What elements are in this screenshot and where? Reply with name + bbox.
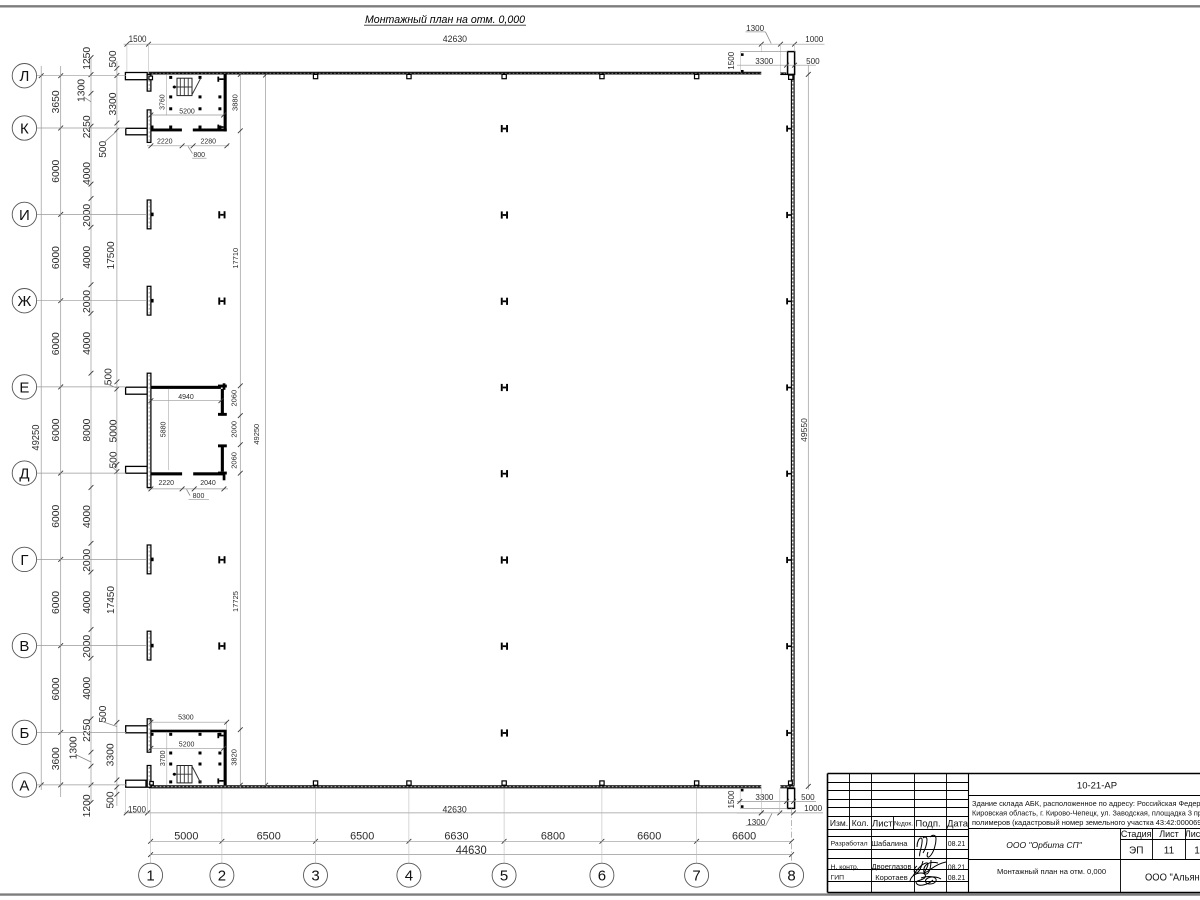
svg-text:Кол.: Кол.	[852, 818, 869, 828]
svg-text:4000: 4000	[81, 677, 93, 700]
svg-text:08.21: 08.21	[948, 865, 966, 872]
svg-text:Двоеглазов: Двоеглазов	[872, 862, 912, 871]
svg-text:2000: 2000	[81, 290, 93, 313]
svg-text:1500: 1500	[726, 51, 736, 69]
svg-text:6000: 6000	[50, 677, 62, 700]
svg-text:11: 11	[1164, 846, 1175, 857]
svg-text:Лист: Лист	[1159, 829, 1179, 839]
svg-text:ООО "Орбита СП": ООО "Орбита СП"	[1006, 840, 1082, 850]
svg-text:Листов: Листов	[1185, 829, 1200, 839]
svg-text:08.21: 08.21	[948, 841, 966, 848]
svg-text:А: А	[19, 777, 29, 794]
svg-text:4940: 4940	[178, 394, 194, 401]
svg-text:42630: 42630	[442, 805, 466, 815]
svg-text:1000: 1000	[804, 803, 822, 813]
svg-text:6500: 6500	[350, 831, 374, 843]
svg-text:500: 500	[103, 368, 115, 385]
svg-text:5200: 5200	[179, 741, 195, 748]
svg-text:1: 1	[1194, 846, 1200, 857]
svg-text:5: 5	[500, 868, 508, 885]
svg-text:6: 6	[598, 868, 606, 885]
svg-text:Монтажный план на отм. 0,000: Монтажный план на отм. 0,000	[365, 14, 526, 26]
svg-text:3300: 3300	[755, 792, 773, 802]
svg-text:2060: 2060	[229, 452, 238, 469]
svg-text:Л: Л	[19, 68, 29, 85]
svg-text:3600: 3600	[50, 747, 62, 770]
svg-text:3300: 3300	[755, 56, 773, 66]
svg-text:5200: 5200	[179, 108, 195, 115]
svg-text:ЭП: ЭП	[1129, 846, 1143, 857]
svg-text:Подп.: Подп.	[915, 818, 940, 829]
svg-text:6600: 6600	[637, 831, 661, 843]
svg-text:полимеров (кадастровый номер з: полимеров (кадастровый номер земельного …	[972, 818, 1200, 827]
svg-text:500: 500	[806, 56, 820, 66]
svg-text:08.21: 08.21	[948, 875, 966, 882]
svg-text:42630: 42630	[443, 34, 467, 44]
svg-text:7: 7	[692, 868, 700, 885]
svg-text:Здание склада АБК, расположенн: Здание склада АБК, расположенное по адре…	[972, 799, 1200, 808]
svg-text:2000: 2000	[229, 421, 238, 438]
svg-text:4000: 4000	[81, 162, 93, 185]
svg-text:500: 500	[107, 50, 119, 67]
svg-text:Ж: Ж	[17, 293, 31, 310]
svg-text:17725: 17725	[231, 591, 240, 612]
svg-text:2000: 2000	[81, 204, 93, 227]
svg-text:6000: 6000	[50, 246, 62, 269]
svg-text:Монтажный план на отм. 0,000: Монтажный план на отм. 0,000	[997, 867, 1106, 876]
svg-text:4000: 4000	[81, 505, 93, 528]
svg-text:Б: Б	[19, 725, 29, 742]
svg-text:8: 8	[787, 868, 795, 885]
svg-text:2040: 2040	[200, 480, 216, 487]
svg-text:ООО "Альянспроект": ООО "Альянспроект"	[1145, 871, 1200, 883]
svg-text:17710: 17710	[231, 248, 240, 269]
svg-text:Г: Г	[20, 552, 28, 569]
svg-text:2220: 2220	[159, 480, 175, 487]
svg-text:Шабалина: Шабалина	[871, 839, 908, 848]
svg-text:5000: 5000	[108, 419, 120, 442]
svg-text:ГИП: ГИП	[831, 875, 845, 882]
svg-text:5880: 5880	[160, 422, 167, 438]
svg-text:Н. контр.: Н. контр.	[831, 864, 859, 871]
svg-text:4000: 4000	[81, 591, 93, 614]
svg-text:Лист: Лист	[872, 818, 893, 829]
svg-text:1000: 1000	[805, 34, 823, 44]
svg-text:1: 1	[146, 868, 154, 885]
svg-text:6000: 6000	[50, 332, 62, 355]
svg-text:6000: 6000	[50, 591, 62, 614]
svg-text:17450: 17450	[105, 586, 117, 614]
svg-text:3880: 3880	[231, 94, 240, 111]
svg-text:500: 500	[801, 792, 815, 802]
svg-text:17500: 17500	[105, 241, 117, 269]
svg-text:6600: 6600	[732, 831, 756, 843]
svg-text:В: В	[19, 638, 29, 655]
svg-text:2000: 2000	[81, 549, 93, 572]
svg-text:8000: 8000	[81, 418, 93, 441]
svg-text:2250: 2250	[81, 115, 93, 138]
svg-text:4000: 4000	[81, 332, 93, 355]
svg-text:49550: 49550	[799, 418, 809, 442]
svg-text:500: 500	[97, 705, 109, 722]
svg-text:К: К	[20, 120, 29, 137]
svg-text:1500: 1500	[129, 34, 147, 44]
svg-text:И: И	[19, 207, 30, 224]
svg-text:3300: 3300	[105, 743, 117, 766]
svg-text:3820: 3820	[230, 749, 239, 766]
svg-text:500: 500	[97, 141, 109, 158]
svg-text:3650: 3650	[50, 90, 62, 113]
svg-text:Дата: Дата	[947, 818, 969, 829]
svg-text:4: 4	[405, 868, 413, 885]
svg-text:1500: 1500	[726, 790, 736, 808]
svg-text:500: 500	[108, 451, 120, 468]
svg-text:3: 3	[311, 868, 319, 885]
svg-text:1300: 1300	[746, 23, 764, 33]
svg-text:6000: 6000	[50, 418, 62, 441]
svg-text:49250: 49250	[31, 424, 42, 450]
svg-text:6000: 6000	[50, 160, 62, 183]
svg-text:Стадия: Стадия	[1121, 829, 1152, 839]
svg-text:Е: Е	[19, 379, 29, 396]
svg-text:1200: 1200	[81, 794, 93, 817]
svg-text:2060: 2060	[229, 390, 238, 407]
svg-text:2000: 2000	[81, 635, 93, 658]
svg-text:6000: 6000	[50, 505, 62, 528]
svg-text:6800: 6800	[541, 831, 565, 843]
svg-text:2250: 2250	[81, 719, 93, 742]
svg-text:2280: 2280	[201, 139, 217, 146]
svg-text:Д: Д	[19, 466, 29, 483]
svg-text:1500: 1500	[128, 805, 146, 815]
svg-text:Изм.: Изм.	[830, 818, 848, 828]
svg-text:6630: 6630	[444, 831, 468, 843]
svg-text:№док.: №док.	[894, 820, 913, 827]
svg-text:2220: 2220	[157, 139, 173, 146]
svg-text:44630: 44630	[456, 843, 487, 857]
svg-text:500: 500	[105, 791, 117, 808]
svg-text:800: 800	[193, 493, 205, 500]
svg-text:3300: 3300	[107, 92, 119, 115]
svg-text:1250: 1250	[81, 47, 93, 70]
svg-text:3700: 3700	[160, 750, 167, 766]
svg-text:5300: 5300	[178, 715, 194, 722]
svg-text:3760: 3760	[160, 94, 167, 110]
svg-text:49250: 49250	[252, 424, 261, 445]
svg-text:10-21-АР: 10-21-АР	[1077, 780, 1117, 791]
svg-text:2: 2	[218, 868, 226, 885]
svg-text:Разработал: Разработал	[831, 840, 868, 848]
svg-text:Коротаев: Коротаев	[875, 873, 907, 882]
svg-text:Кировская область, г. Кирово-Ч: Кировская область, г. Кирово-Чепецк, ул.…	[972, 809, 1200, 818]
svg-text:6500: 6500	[257, 831, 281, 843]
svg-text:4000: 4000	[81, 246, 93, 269]
svg-text:5000: 5000	[174, 831, 198, 843]
